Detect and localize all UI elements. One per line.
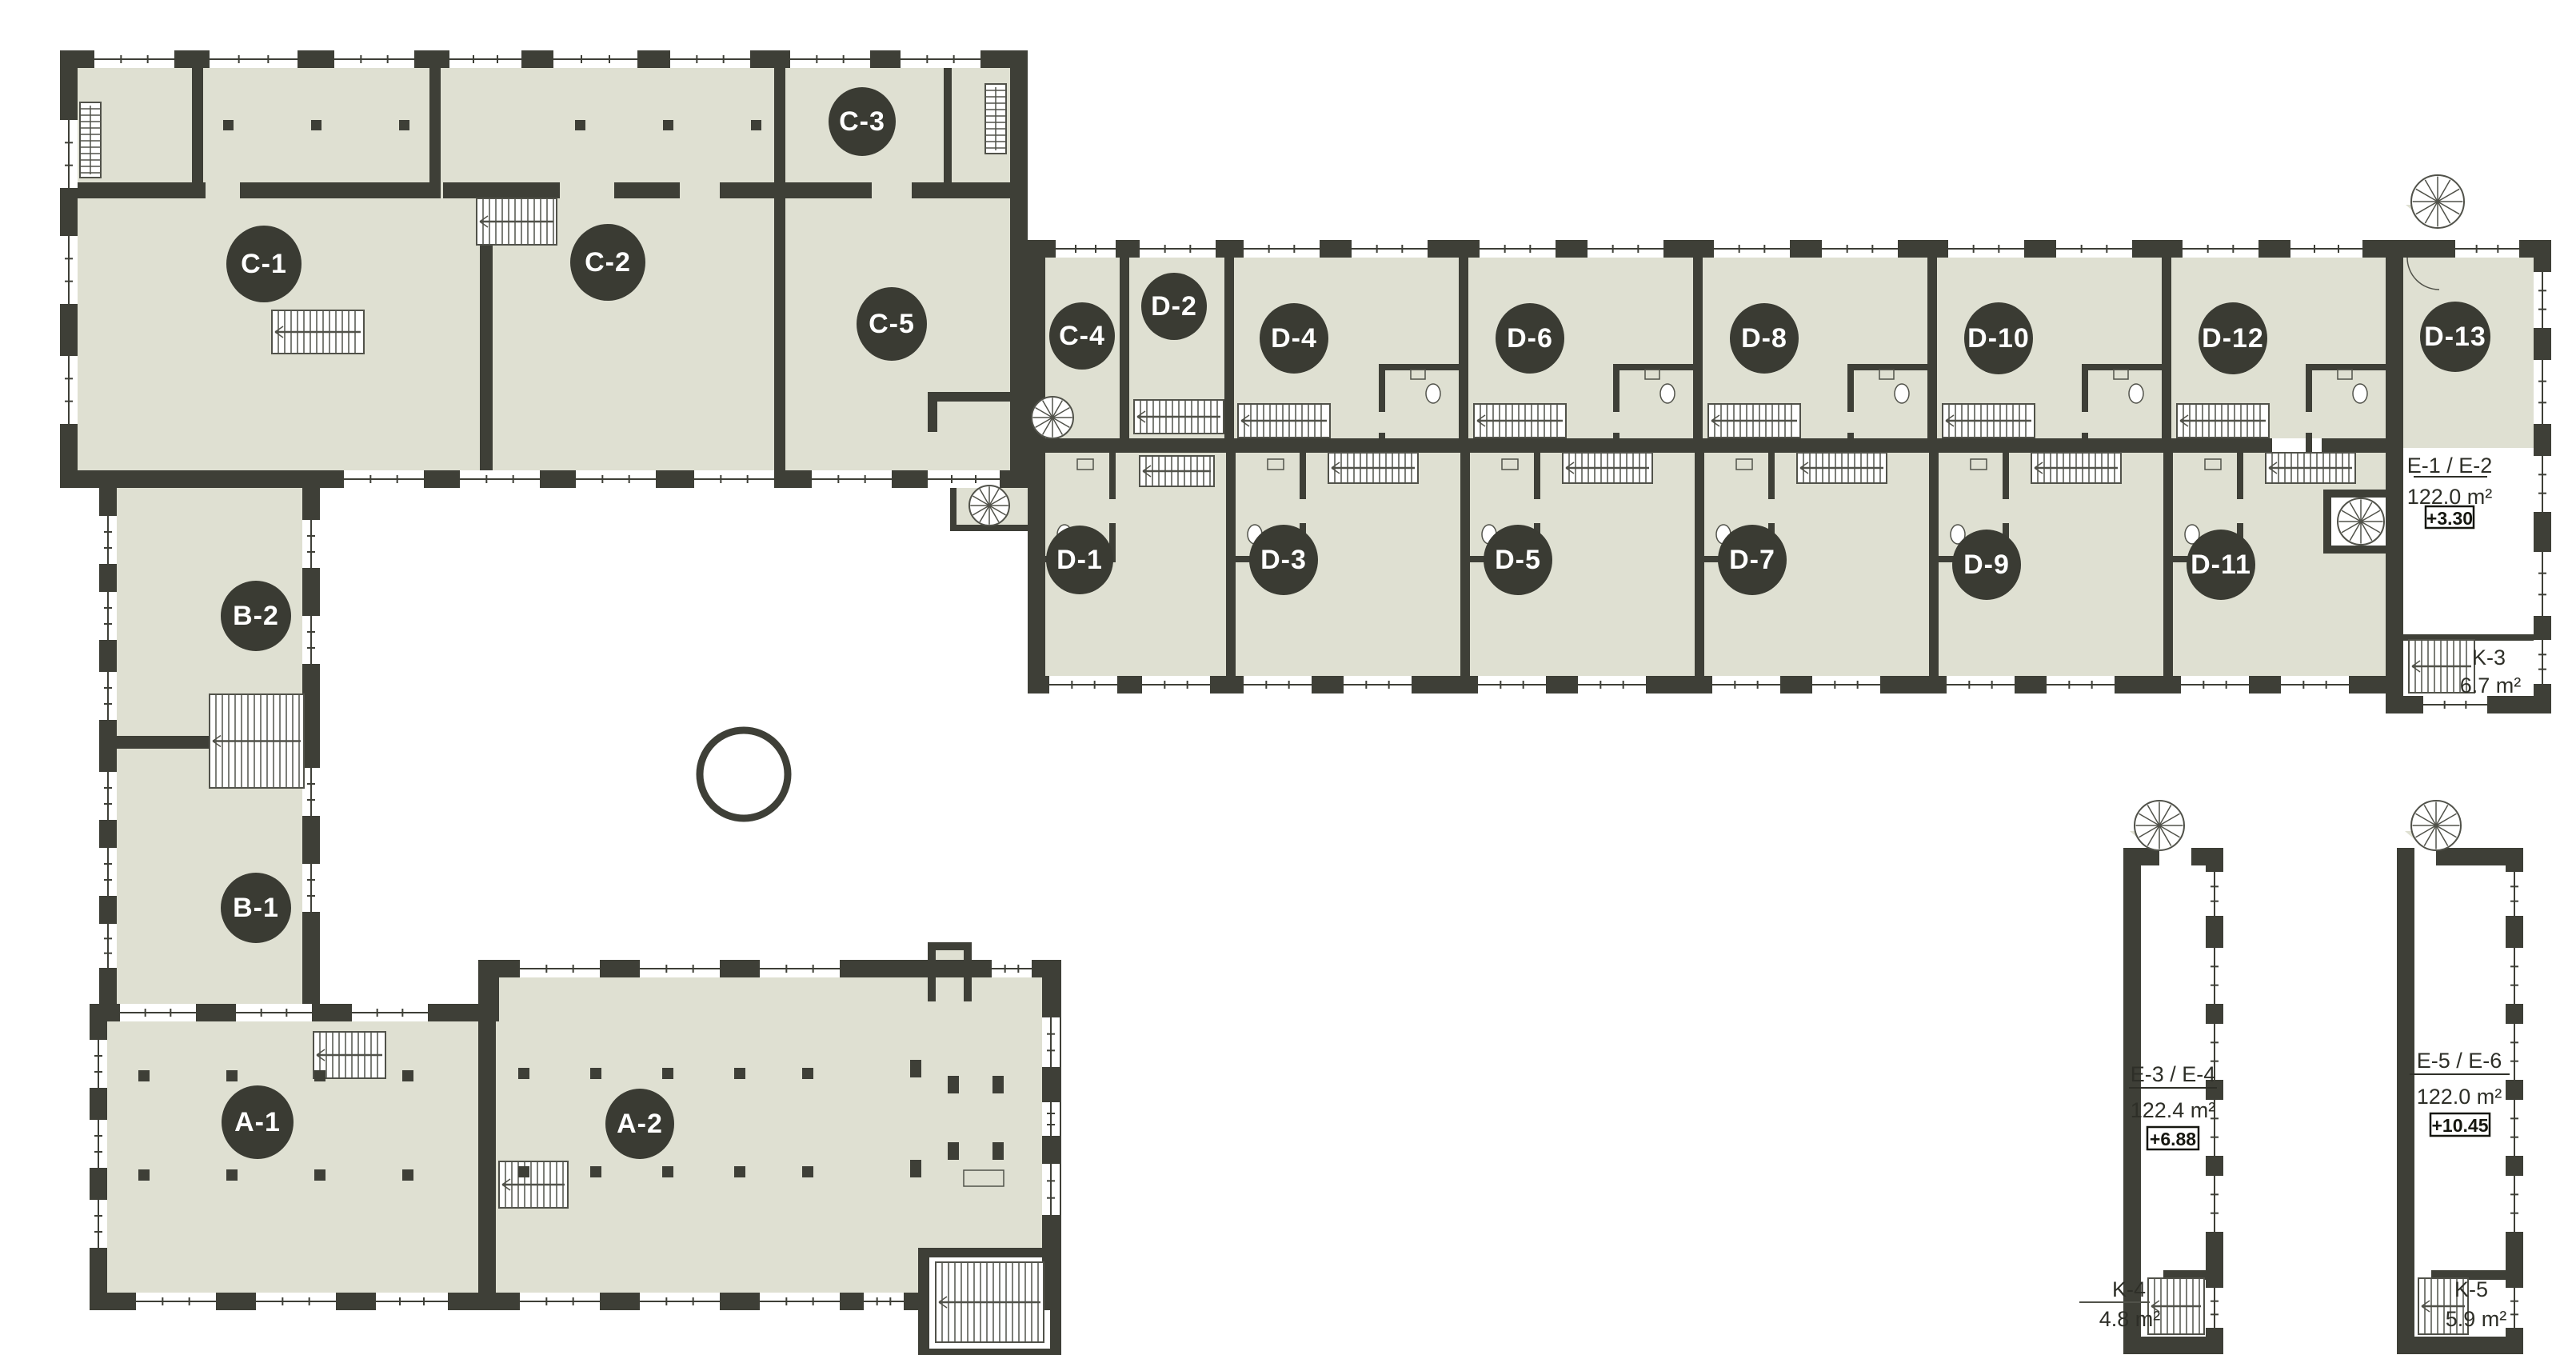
unit-bubble-label: D-11 (2191, 550, 2251, 580)
unit-bubble-label: D-9 (1963, 550, 2010, 580)
unit-bubble[interactable]: D-8 (1730, 303, 1799, 374)
unit-bubble[interactable]: A-1 (222, 1085, 294, 1159)
e5-e6-level: +10.45 (2432, 1115, 2489, 1136)
unit-bubble[interactable]: B-1 (221, 873, 291, 943)
unit-bubble[interactable]: D-10 (1964, 302, 2033, 374)
e1-e2-level: +3.30 (2426, 508, 2473, 529)
unit-bubble-label: D-5 (1495, 545, 1541, 575)
k3-area: 6.7 m² (2460, 674, 2522, 697)
e1-e2-area: 122.0 m² (2407, 485, 2493, 509)
unit-bubble[interactable]: D-3 (1249, 525, 1318, 595)
unit-bubble[interactable]: D-13 (2420, 302, 2490, 372)
unit-bubble-label: A-1 (234, 1107, 281, 1137)
unit-bubble-label: B-2 (233, 601, 279, 631)
unit-bubble[interactable]: D-2 (1141, 273, 1207, 340)
unit-bubble[interactable]: D-11 (2187, 530, 2255, 600)
k3-label: K-3 (2472, 646, 2506, 670)
k5-area: 5.9 m² (2446, 1307, 2507, 1331)
unit-bubble-label: D-4 (1271, 323, 1317, 354)
unit-bubble-label: D-3 (1260, 545, 1307, 575)
unit-bubble-label: D-8 (1741, 323, 1787, 354)
e5-e6-title: E-5 / E-6 (2417, 1049, 2502, 1073)
unit-bubble-label: C-3 (839, 106, 885, 137)
k4-label: K-4 (2112, 1277, 2146, 1301)
unit-bubble[interactable]: A-2 (605, 1089, 674, 1159)
unit-bubble[interactable]: D-9 (1952, 530, 2021, 600)
e3-e4-level: +6.88 (2150, 1129, 2196, 1149)
unit-bubble-label: D-6 (1507, 323, 1553, 354)
unit-bubble[interactable]: C-5 (857, 287, 927, 361)
unit-bubble-label: D-2 (1151, 291, 1197, 322)
e3-e4-area: 122.4 m² (2131, 1098, 2216, 1122)
unit-bubble[interactable]: B-2 (221, 581, 291, 651)
unit-bubble[interactable]: D-1 (1046, 526, 1113, 594)
floor-plan-canvas: C-1C-2C-3C-5C-4D-2D-4D-6D-8D-10D-12D-13D… (0, 0, 2576, 1355)
unit-bubble-label: C-2 (585, 247, 631, 278)
unit-bubble-label: C-1 (241, 249, 287, 279)
e1-e2-title: E-1 / E-2 (2407, 454, 2493, 478)
unit-bubble-label: C-5 (869, 309, 915, 339)
unit-bubble[interactable]: D-4 (1260, 303, 1328, 374)
unit-bubble-label: B-1 (233, 893, 279, 923)
unit-bubble-label: D-13 (2424, 322, 2486, 352)
e5-e6-area: 122.0 m² (2417, 1085, 2502, 1109)
k4-area: 4.8 m² (2099, 1307, 2161, 1331)
unit-bubble[interactable]: D-7 (1718, 525, 1787, 595)
unit-bubble[interactable]: C-4 (1049, 302, 1115, 370)
unit-bubble-label: D-12 (2202, 323, 2264, 354)
unit-bubble-label: A-2 (617, 1109, 663, 1139)
unit-bubble[interactable]: C-1 (226, 226, 302, 302)
unit-bubble[interactable]: D-5 (1484, 525, 1552, 595)
unit-bubble-label: D-10 (1967, 323, 2030, 354)
unit-bubble[interactable]: D-6 (1496, 303, 1564, 374)
unit-bubble[interactable]: C-3 (829, 87, 896, 156)
unit-bubble-label: D-1 (1056, 545, 1103, 575)
unit-bubble[interactable]: D-12 (2199, 302, 2267, 374)
e3-e4-title: E-3 / E-4 (2131, 1062, 2216, 1086)
unit-bubble[interactable]: C-2 (570, 224, 645, 301)
floor-plan-page: C-1C-2C-3C-5C-4D-2D-4D-6D-8D-10D-12D-13D… (0, 0, 2576, 1355)
unit-bubble-label: D-7 (1729, 545, 1775, 575)
unit-bubble-label: C-4 (1059, 321, 1105, 351)
k5-label: K-5 (2454, 1277, 2488, 1301)
